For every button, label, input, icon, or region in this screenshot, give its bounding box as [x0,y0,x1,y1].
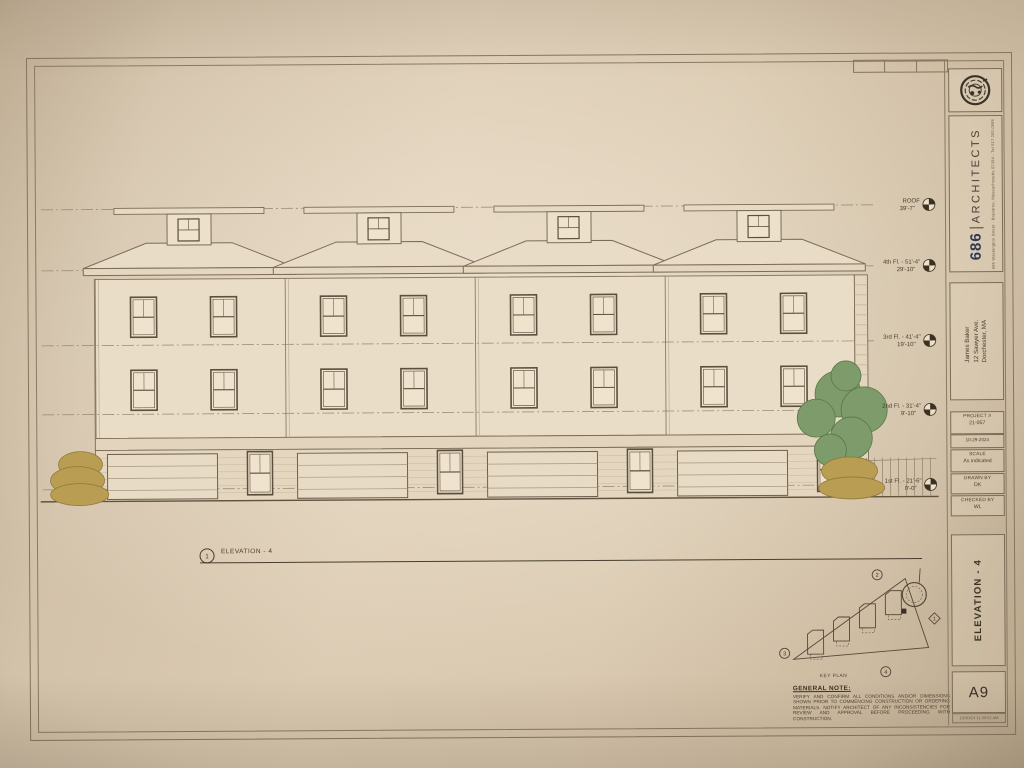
scale-box: SCALE As indicated [950,449,1004,472]
svg-text:ROOF: ROOF [903,199,921,205]
svg-text:0'-0": 0'-0" [905,486,917,492]
client-address-line2: Dorchester, MA [981,320,990,363]
sheet-title-box: ELEVATION - 4 [951,534,1006,666]
firm-number: 686 [968,232,985,260]
svg-text:3rd Fl. - 41'-4": 3rd Fl. - 41'-4" [883,335,921,341]
firm-name-box: 686 ARCHITECTS 686 Washington Street - B… [948,115,1003,272]
general-note-heading: GENERAL NOTE: [793,684,950,692]
photographed-drawing-sheet: ROOF 39'-7" 4th Fl. - 51'-4" 29'-10" 3rd… [0,0,1024,768]
svg-text:4: 4 [884,670,887,676]
project-number-box: PROJECT # 21-057 [950,411,1004,434]
checked-by-box: CHECKED BY WL [951,495,1005,516]
project-number-value: 21-057 [951,419,1003,428]
callout-label: ELEVATION - 4 [221,548,272,555]
view-callout: 1 ELEVATION - 4 [200,544,922,563]
firm-name: ARCHITECTS [969,127,982,222]
svg-text:9'-10": 9'-10" [901,411,916,417]
date-value: 10-29-2024 [951,435,1003,444]
key-plan-label: KEY PLAN [820,673,847,679]
sheet: ROOF 39'-7" 4th Fl. - 51'-4" 29'-10" 3rd… [0,0,1024,768]
elevation-drawing: ROOF 39'-7" 4th Fl. - 51'-4" 29'-10" 3rd… [34,60,948,731]
firm-divider [969,227,983,228]
drawn-by-box: DRAWN BY DK [951,473,1005,494]
sheet-title: ELEVATION - 4 [973,559,985,641]
level-marker-2nd: 2nd Fl. - 31'-4" 9'-10" [882,403,936,417]
date-box: 10-29-2024 [950,434,1004,448]
scale-value: As indicated [951,457,1003,466]
firm-logo-box [948,68,1002,112]
svg-text:2nd Fl. - 31'-4": 2nd Fl. - 31'-4" [882,404,921,410]
checked-by-value: WL [952,503,1004,512]
level-marker-3rd: 3rd Fl. - 41'-4" 19'-10" [883,334,936,348]
sheet-number: A9 [969,684,989,701]
svg-text:39'-7": 39'-7" [900,206,915,212]
svg-text:2: 2 [876,573,879,579]
level-marker-1st: 1st Fl. - 21'-6" 0'-0" [885,478,937,492]
callout-number: 1 [205,553,209,560]
firm-logo-icon [958,73,992,107]
svg-text:1st Fl. - 21'-6": 1st Fl. - 21'-6" [885,478,922,484]
title-block: 686 ARCHITECTS 686 Washington Street - B… [944,60,1007,725]
level-marker-4th: 4th Fl. - 51'-4" 29'-10" [883,259,935,273]
svg-text:29'-10": 29'-10" [897,267,916,273]
level-marker-roof: ROOF 39'-7" [900,198,935,212]
drawn-by-value: DK [952,481,1004,490]
client-address-line1: 12 Sawyer Ave. [972,320,981,363]
svg-text:3: 3 [783,651,786,657]
client-name: James Baker [964,320,973,363]
plot-stamp: 10/30/24 11:39:52 AM [952,713,1006,723]
level-markers: ROOF 39'-7" 4th Fl. - 51'-4" 29'-10" 3rd… [881,198,937,492]
general-note-body: VERIFY AND CONFIRM ALL CONDITIONS AND/OR… [793,693,950,722]
firm-address: 686 Washington Street - Braintree, Massa… [990,118,996,268]
client-box: James Baker 12 Sawyer Ave. Dorchester, M… [949,282,1004,400]
shrub-left [50,451,108,505]
key-plan: 2 3 4 1 KEY PLAN [779,568,940,679]
sheet-number-box: A9 [952,671,1006,713]
key-plan-footprints [807,591,901,660]
svg-text:4th Fl. - 51'-4": 4th Fl. - 51'-4" [883,260,920,266]
svg-text:1: 1 [933,616,936,622]
general-note: GENERAL NOTE: VERIFY AND CONFIRM ALL CON… [793,684,950,721]
svg-text:19'-10": 19'-10" [897,342,916,348]
